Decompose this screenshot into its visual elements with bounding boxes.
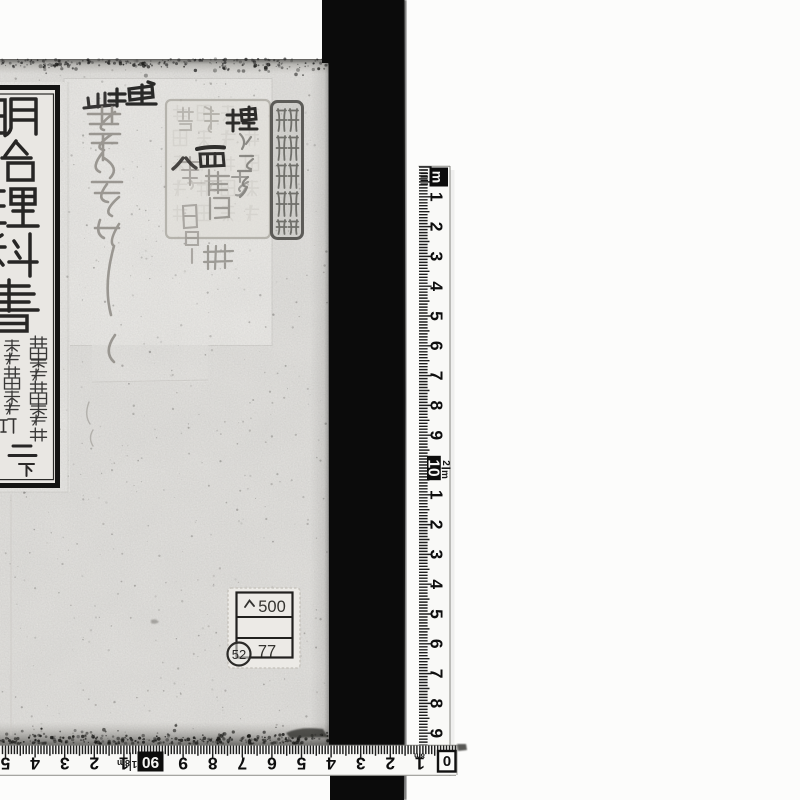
svg-text:9: 9 xyxy=(178,754,188,774)
svg-text:8m: 8m xyxy=(117,758,130,768)
svg-text:m: m xyxy=(430,171,446,183)
svg-text:m: m xyxy=(439,470,450,479)
svg-text:7: 7 xyxy=(237,754,247,774)
svg-text:3: 3 xyxy=(356,754,366,774)
svg-text:6: 6 xyxy=(427,341,447,351)
svg-text:3: 3 xyxy=(427,252,447,262)
svg-text:500: 500 xyxy=(258,598,286,616)
svg-text:3: 3 xyxy=(60,754,70,774)
svg-text:7: 7 xyxy=(427,371,447,381)
svg-text:5: 5 xyxy=(427,311,447,321)
svg-text:1: 1 xyxy=(427,490,447,500)
svg-text:7: 7 xyxy=(427,669,447,679)
svg-text:52: 52 xyxy=(232,647,246,662)
svg-text:5: 5 xyxy=(0,754,10,774)
svg-text:5: 5 xyxy=(296,754,306,774)
svg-text:77: 77 xyxy=(258,643,276,661)
svg-text:4: 4 xyxy=(326,754,336,774)
svg-text:2: 2 xyxy=(427,520,447,530)
svg-text:2: 2 xyxy=(89,754,99,774)
svg-text:2: 2 xyxy=(440,460,451,466)
svg-text:1: 1 xyxy=(427,192,447,202)
svg-text:5: 5 xyxy=(427,609,447,619)
svg-text:9: 9 xyxy=(427,430,447,440)
svg-text:10: 10 xyxy=(424,459,441,476)
svg-text:8: 8 xyxy=(427,401,447,411)
svg-text:90: 90 xyxy=(142,753,159,770)
svg-text:8: 8 xyxy=(208,754,218,774)
svg-text:6: 6 xyxy=(427,639,447,649)
svg-text:2: 2 xyxy=(385,754,395,774)
svg-text:6: 6 xyxy=(267,754,277,774)
svg-text:4: 4 xyxy=(427,579,447,589)
svg-text:9: 9 xyxy=(427,728,447,738)
svg-text:3: 3 xyxy=(427,550,447,560)
svg-text:1: 1 xyxy=(131,758,137,769)
svg-text:8m: 8m xyxy=(414,752,425,761)
svg-text:4: 4 xyxy=(30,754,40,774)
svg-text:8: 8 xyxy=(427,699,447,709)
svg-text:2: 2 xyxy=(427,222,447,232)
svg-text:0: 0 xyxy=(443,752,451,769)
svg-text:4: 4 xyxy=(427,281,447,291)
